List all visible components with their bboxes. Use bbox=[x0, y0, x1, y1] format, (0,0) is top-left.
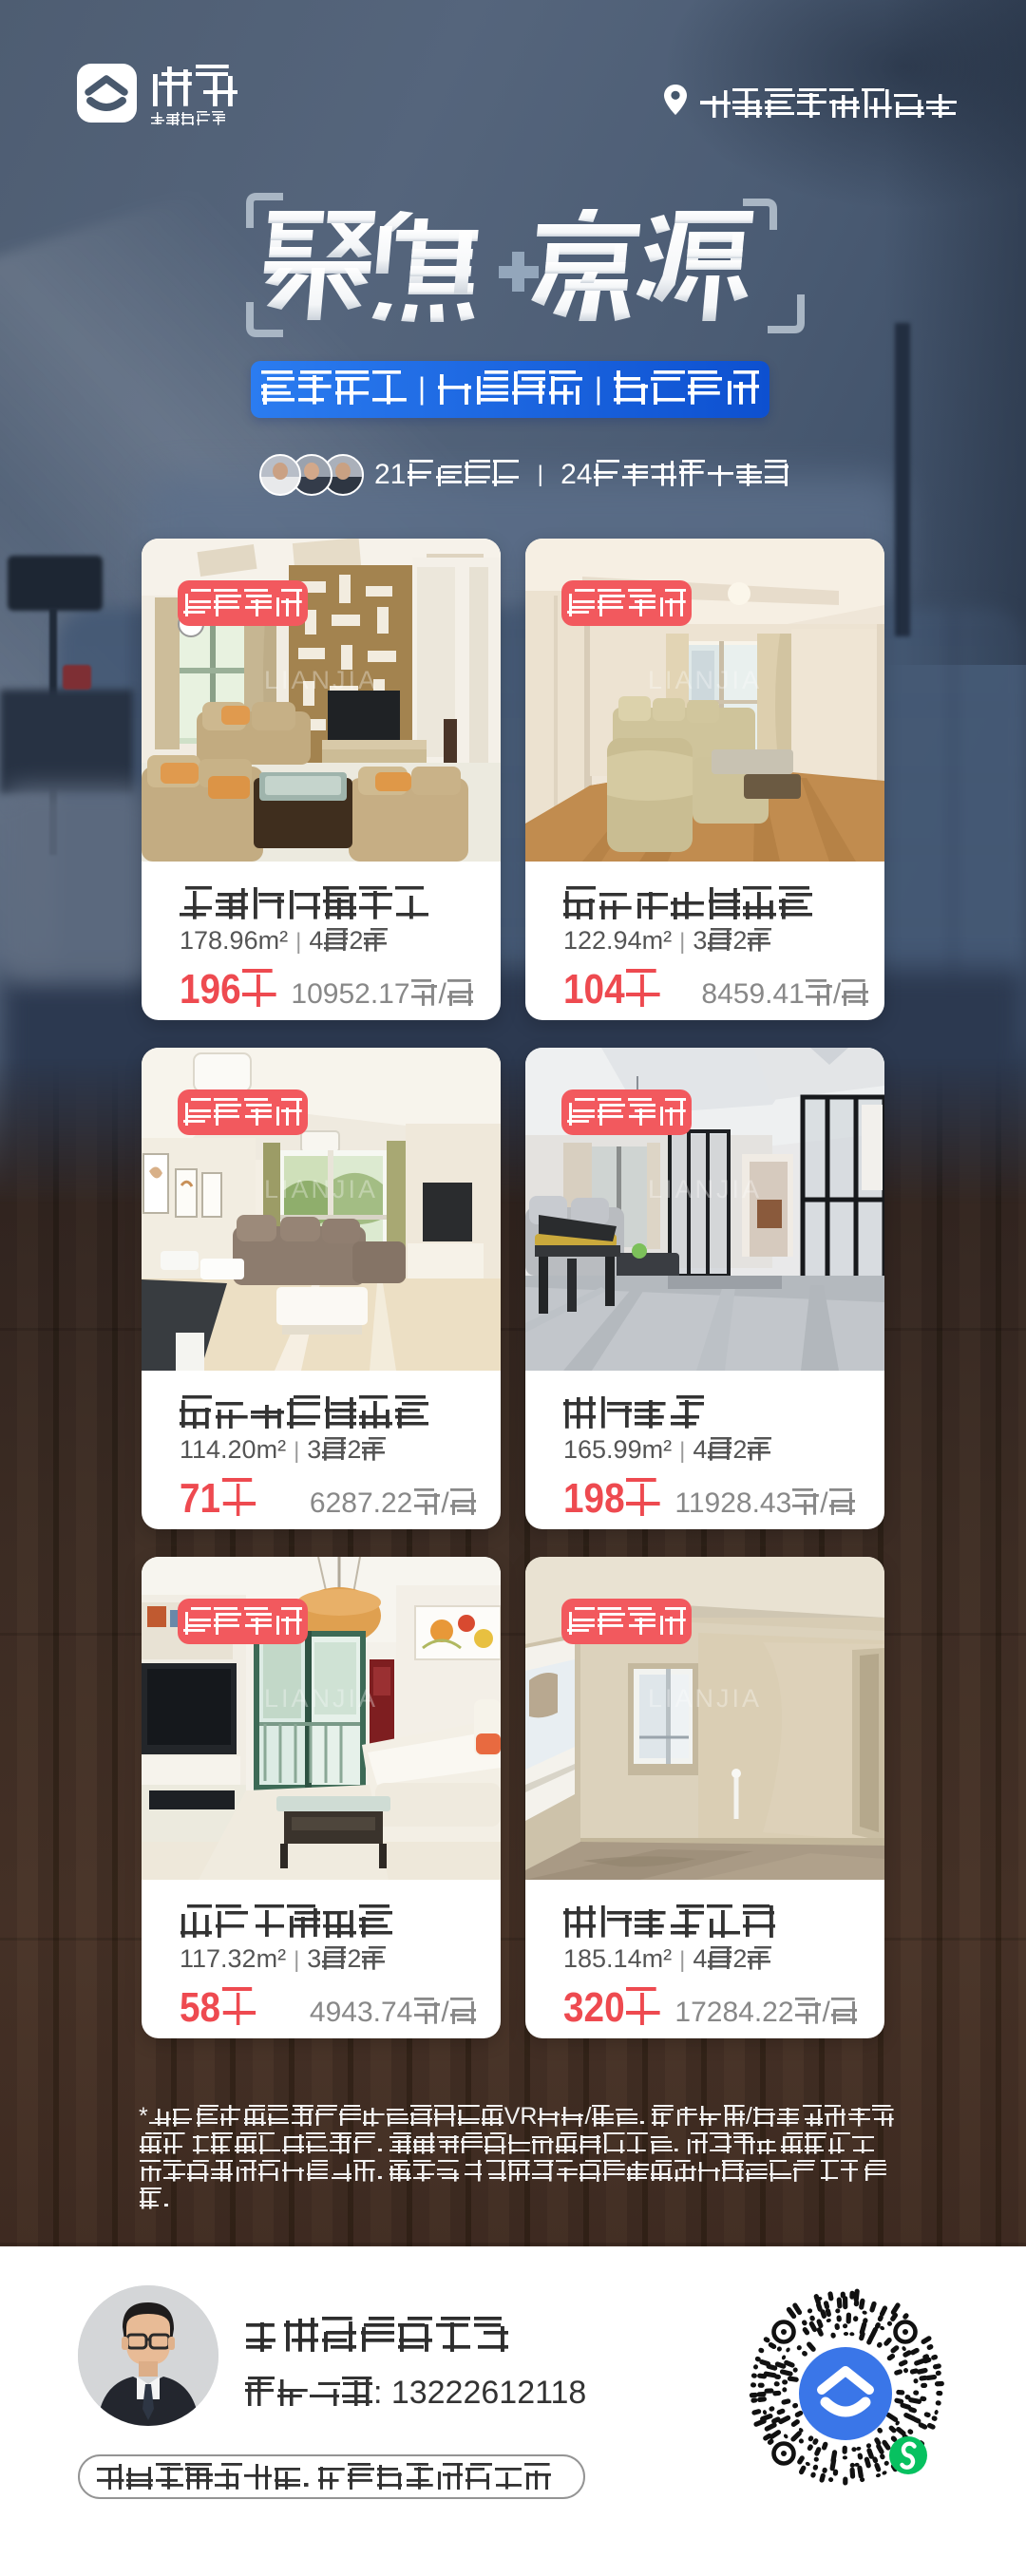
svg-text:LIANJIA: LIANJIA bbox=[264, 666, 378, 694]
svg-text:LIANJIA: LIANJIA bbox=[648, 666, 762, 694]
svg-text:LIANJIA: LIANJIA bbox=[648, 1684, 762, 1713]
svg-text:LIANJIA: LIANJIA bbox=[264, 1684, 378, 1713]
svg-text:LIANJIA: LIANJIA bbox=[648, 1175, 762, 1203]
svg-text:LIANJIA: LIANJIA bbox=[264, 1175, 378, 1203]
